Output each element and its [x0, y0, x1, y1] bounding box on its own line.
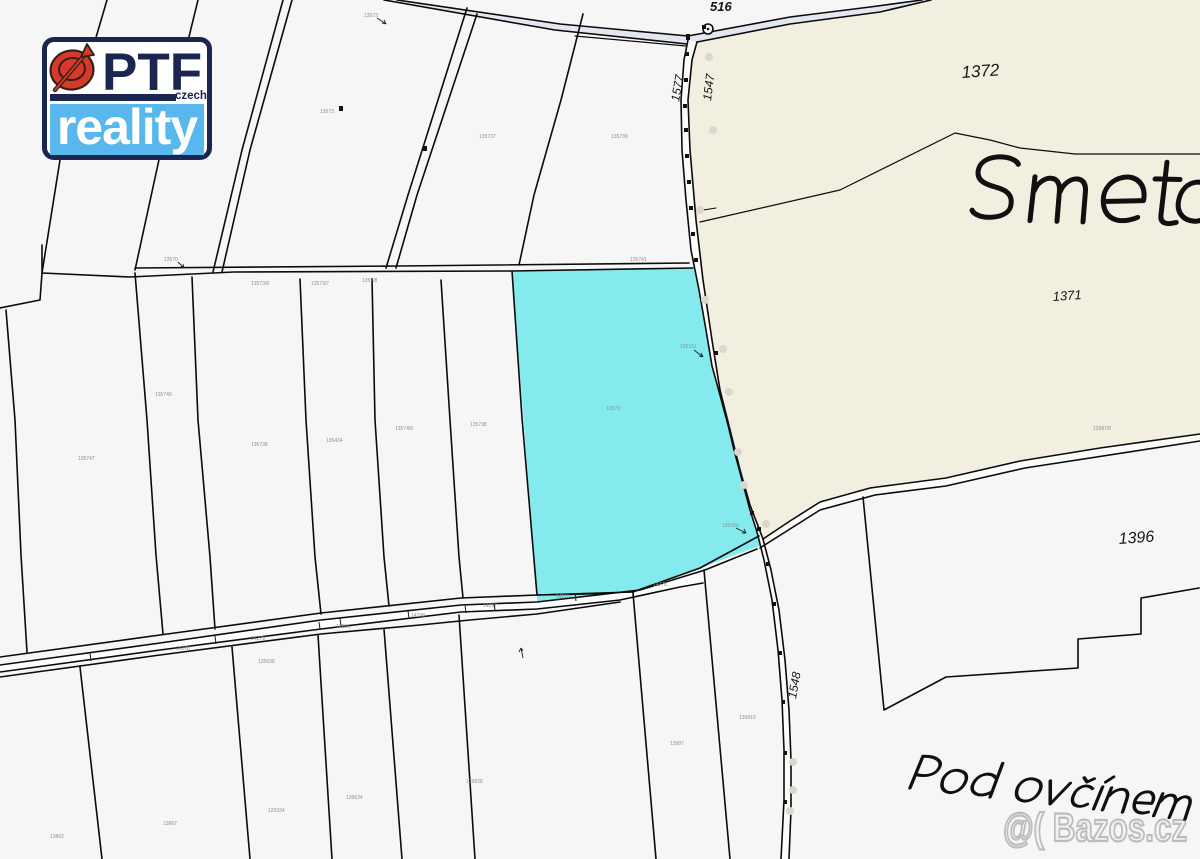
svg-text:135738: 135738: [251, 442, 268, 448]
svg-text:1548: 1548: [785, 670, 803, 699]
svg-text:13574/6: 13574/6: [395, 426, 413, 432]
svg-text:129334: 129334: [268, 808, 285, 814]
svg-text:516: 516: [710, 0, 732, 14]
svg-text:13867: 13867: [163, 821, 177, 827]
svg-text:139838: 139838: [466, 779, 483, 785]
svg-text:1396: 1396: [1118, 529, 1155, 548]
svg-text:135434: 135434: [326, 438, 343, 444]
svg-text:13578: 13578: [606, 406, 620, 412]
svg-text:135151: 135151: [680, 344, 697, 350]
svg-text:1357/8: 1357/8: [362, 278, 378, 284]
svg-text:13573: 13573: [320, 109, 334, 115]
svg-text:14215: 14215: [556, 594, 570, 600]
svg-text:13573/8: 13573/8: [251, 281, 269, 287]
svg-text:14278: 14278: [176, 646, 190, 652]
svg-text:14278: 14278: [653, 582, 667, 588]
svg-text:13570: 13570: [164, 257, 178, 263]
svg-text:13987: 13987: [670, 741, 684, 747]
svg-text:135747: 135747: [78, 456, 95, 462]
svg-text:14215: 14215: [336, 624, 350, 630]
svg-text:139634: 139634: [346, 795, 363, 801]
svg-text:135737: 135737: [479, 134, 496, 140]
svg-text:135739: 135739: [611, 134, 628, 140]
svg-text:13862: 13862: [50, 834, 64, 840]
svg-text:1371: 1371: [1052, 287, 1082, 304]
svg-text:13573/7: 13573/7: [311, 281, 329, 287]
svg-text:1372: 1372: [961, 60, 1001, 82]
svg-text:135738: 135738: [470, 422, 487, 428]
svg-text:135749: 135749: [155, 392, 172, 398]
svg-text:14279: 14279: [251, 636, 265, 642]
svg-text:139819: 139819: [739, 715, 756, 721]
svg-text:14298: 14298: [411, 613, 425, 619]
svg-text:13987/8: 13987/8: [1093, 426, 1111, 432]
svg-text:135741: 135741: [630, 257, 647, 263]
svg-text:13573: 13573: [364, 13, 378, 19]
svg-text:125638: 125638: [258, 659, 275, 665]
